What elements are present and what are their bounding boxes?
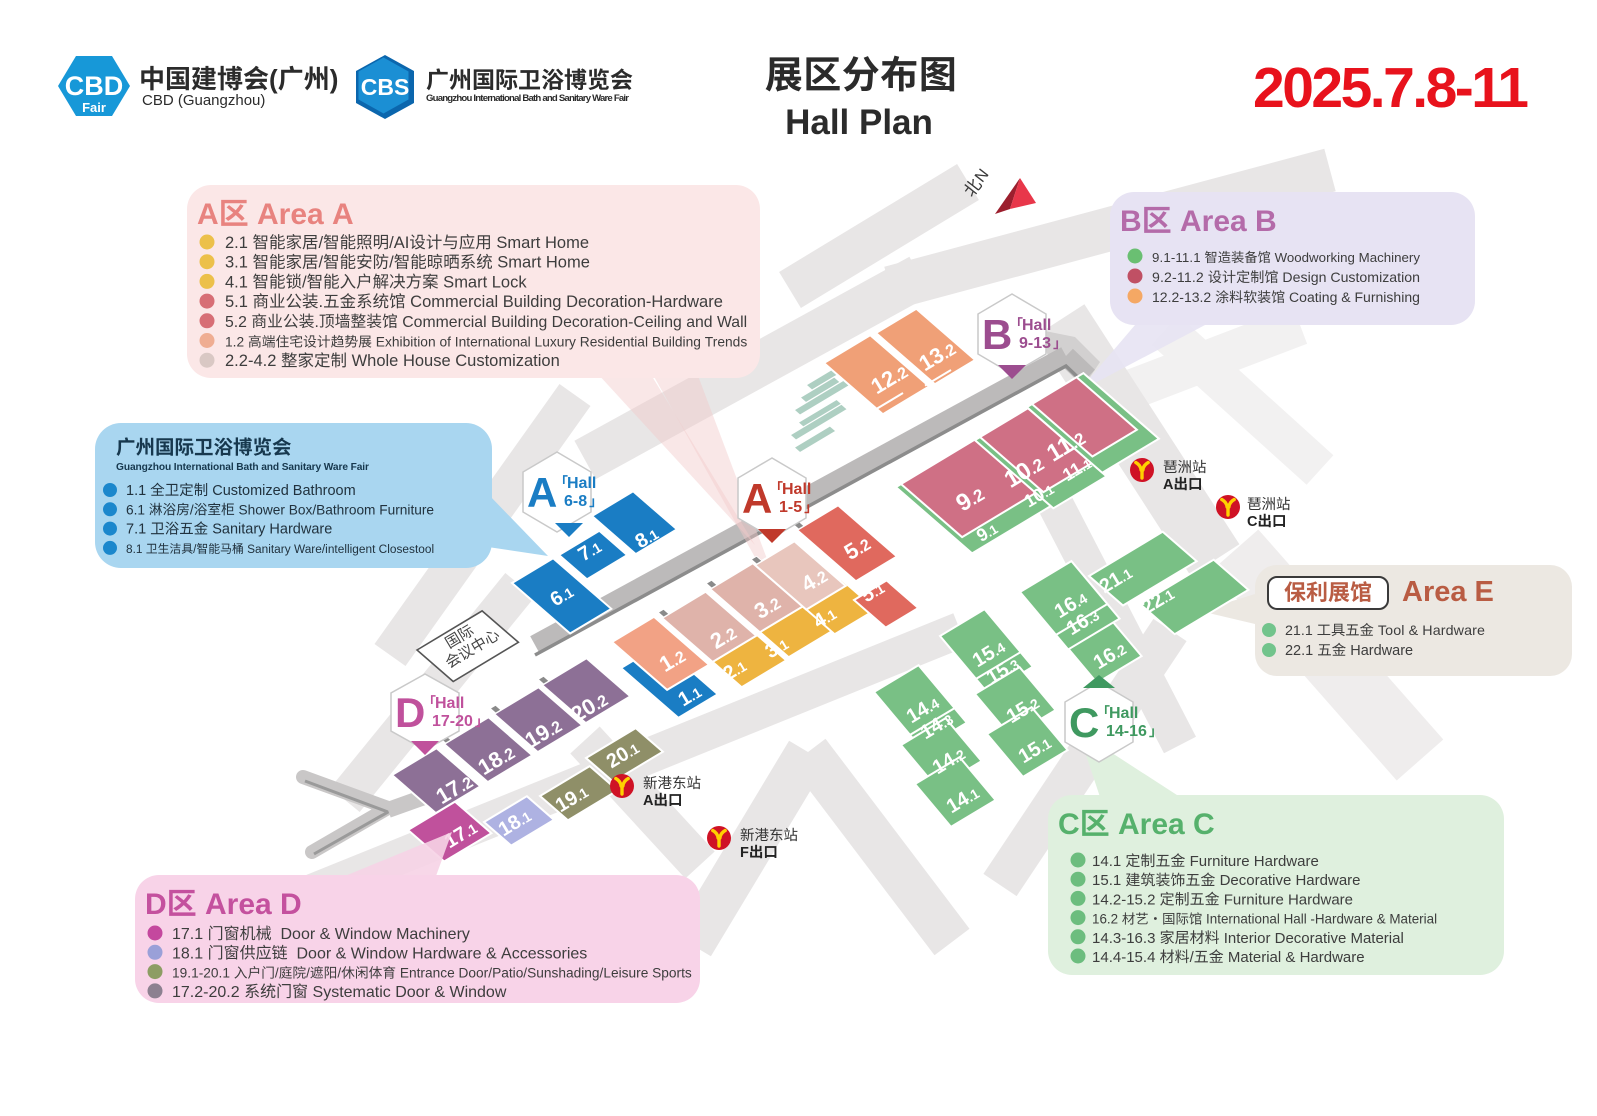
svg-text:.: . [314, 314, 318, 331]
svg-text:9.2-11.2: 9.2-11.2 [1152, 269, 1208, 285]
svg-text:16.2: 16.2 [1092, 912, 1122, 927]
svg-text:21.1: 21.1 [1285, 623, 1317, 639]
svg-text:Material & Hardware: Material & Hardware [1224, 949, 1365, 966]
svg-text:Hall: Hall [435, 695, 464, 712]
svg-text:Furniture Hardware: Furniture Hardware [1220, 891, 1353, 908]
svg-text:/AI: /AI [389, 234, 409, 252]
svg-text:1.2: 1.2 [225, 335, 248, 350]
svg-text:14-16: 14-16 [1106, 723, 1147, 740]
svg-text:1.1: 1.1 [126, 483, 150, 499]
svg-text:CBD (Guangzhou): CBD (Guangzhou) [142, 92, 265, 109]
svg-text:22.1: 22.1 [1285, 643, 1317, 659]
svg-text:/: / [319, 234, 324, 252]
svg-text:18.1: 18.1 [172, 945, 208, 962]
svg-text:Area E: Area E [1402, 576, 1494, 608]
svg-text:9-13: 9-13 [1019, 335, 1051, 352]
svg-text:1-5: 1-5 [779, 499, 802, 516]
svg-text:Decorative Hardware: Decorative Hardware [1215, 872, 1360, 889]
svg-text:/: / [389, 254, 394, 272]
svg-text:F: F [740, 845, 749, 861]
svg-text:/: / [319, 254, 324, 272]
svg-text:3.1: 3.1 [225, 254, 253, 272]
svg-text:8.1: 8.1 [126, 542, 146, 556]
svg-text:2.2-4.2: 2.2-4.2 [225, 352, 281, 370]
svg-text:17-20: 17-20 [432, 713, 473, 730]
svg-text:Area B: Area B [1172, 205, 1277, 238]
svg-text:/: / [337, 966, 341, 981]
svg-text:Smart Home: Smart Home [493, 254, 590, 272]
svg-text:Exhibition of International Lu: Exhibition of International Luxury Resid… [372, 335, 747, 350]
svg-text:12.2-13.2: 12.2-13.2 [1152, 289, 1215, 305]
svg-text:Fair: Fair [82, 100, 106, 115]
svg-text:.: . [319, 293, 324, 311]
svg-text:Customized Bathroom: Customized Bathroom [208, 483, 356, 499]
svg-text:Hall: Hall [782, 481, 811, 498]
svg-text:Hall: Hall [567, 475, 596, 492]
svg-text:Guangzhou International Bath a: Guangzhou International Bath and Sanitar… [116, 462, 369, 473]
svg-text:(: ( [269, 64, 278, 94]
svg-text:Door & Window Hardware & Acces: Door & Window Hardware & Accessories [288, 945, 588, 962]
svg-text:/: / [190, 502, 194, 517]
svg-text:9.1-11.1: 9.1-11.1 [1152, 250, 1204, 265]
svg-text:6.1: 6.1 [126, 502, 149, 517]
svg-text:14.2-15.2: 14.2-15.2 [1092, 891, 1160, 908]
svg-text:5.1: 5.1 [225, 293, 253, 311]
svg-text:Door & Window Machinery: Door & Window Machinery [272, 926, 470, 943]
svg-text:14.4-15.4: 14.4-15.4 [1092, 949, 1160, 966]
svg-text:/: / [306, 966, 310, 981]
svg-text:Shower Box/Bathroom Furniture: Shower Box/Bathroom Furniture [235, 502, 434, 517]
svg-text:19.1-20.1: 19.1-20.1 [172, 966, 234, 981]
svg-text:C: C [1069, 699, 1099, 746]
svg-text:Hall Plan: Hall Plan [785, 103, 933, 142]
svg-text:C: C [1058, 808, 1080, 841]
svg-text:A: A [197, 198, 219, 231]
svg-text:/: / [275, 966, 279, 981]
svg-text:7.1: 7.1 [126, 522, 150, 538]
svg-text:Design Customization: Design Customization [1278, 269, 1419, 285]
svg-text:5.2: 5.2 [225, 314, 251, 331]
svg-text:Whole House Customization: Whole House Customization [347, 352, 560, 370]
svg-text:15.1: 15.1 [1092, 872, 1125, 889]
svg-text:4.1: 4.1 [225, 273, 253, 291]
svg-text:International Hall -Hardware &: International Hall -Hardware & Material [1202, 912, 1437, 927]
svg-text:C: C [1247, 514, 1258, 530]
svg-text:Hall: Hall [1109, 705, 1138, 722]
svg-text:14.3-16.3: 14.3-16.3 [1092, 930, 1160, 947]
svg-text:/: / [302, 273, 307, 291]
svg-text:Area D: Area D [197, 888, 302, 921]
svg-text:2.1: 2.1 [225, 234, 253, 252]
svg-text:Woodworking Machinery: Woodworking Machinery [1271, 250, 1420, 265]
svg-text:14.1: 14.1 [1092, 853, 1125, 870]
svg-text:Interior Decorative Material: Interior Decorative Material [1220, 930, 1404, 947]
svg-text:Smart Home: Smart Home [492, 234, 589, 252]
svg-text:B: B [1120, 205, 1142, 238]
svg-text:Furniture Hardware: Furniture Hardware [1185, 853, 1318, 870]
svg-text:A: A [527, 469, 557, 516]
svg-text:A: A [1163, 477, 1174, 493]
svg-text:): ) [330, 64, 339, 94]
svg-text:Commercial Building Decoration: Commercial Building Decoration-Hardware [406, 293, 723, 311]
svg-text:D: D [145, 888, 167, 921]
svg-text:Coating & Furnishing: Coating & Furnishing [1285, 289, 1420, 305]
svg-text:Area A: Area A [249, 198, 354, 231]
svg-text:A: A [742, 475, 772, 522]
svg-text:Commercial Building Decoration: Commercial Building Decoration-Ceiling a… [398, 314, 747, 331]
svg-text:Hall: Hall [1022, 317, 1051, 334]
svg-text:Sanitary Hardware: Sanitary Hardware [208, 522, 332, 538]
svg-text:Tool & Hardware: Tool & Hardware [1374, 623, 1485, 639]
svg-text:Guangzhou International Bath a: Guangzhou International Bath and Sanitar… [426, 93, 629, 104]
svg-text:Hardware: Hardware [1346, 643, 1413, 659]
svg-text:D: D [395, 689, 425, 736]
svg-text:17.2-20.2: 17.2-20.2 [172, 984, 244, 1001]
svg-text:Sanitary Ware/intelligent Clos: Sanitary Ware/intelligent Closestool [244, 542, 434, 556]
svg-text:Smart Lock: Smart Lock [439, 273, 528, 291]
svg-text:CBS: CBS [361, 74, 410, 100]
svg-text:Entrance Door/Patio/Sunshading: Entrance Door/Patio/Sunshading/Leisure S… [396, 966, 692, 981]
svg-text:Area C: Area C [1110, 808, 1215, 841]
svg-text:Systematic Door & Window: Systematic Door & Window [308, 984, 507, 1001]
svg-text:B: B [982, 311, 1012, 358]
svg-text:2025.7.8-11: 2025.7.8-11 [1253, 56, 1529, 120]
svg-text:17.1: 17.1 [172, 926, 208, 943]
svg-text:A: A [643, 793, 654, 809]
svg-text:CBD: CBD [65, 71, 124, 101]
svg-text:6-8: 6-8 [564, 493, 587, 510]
